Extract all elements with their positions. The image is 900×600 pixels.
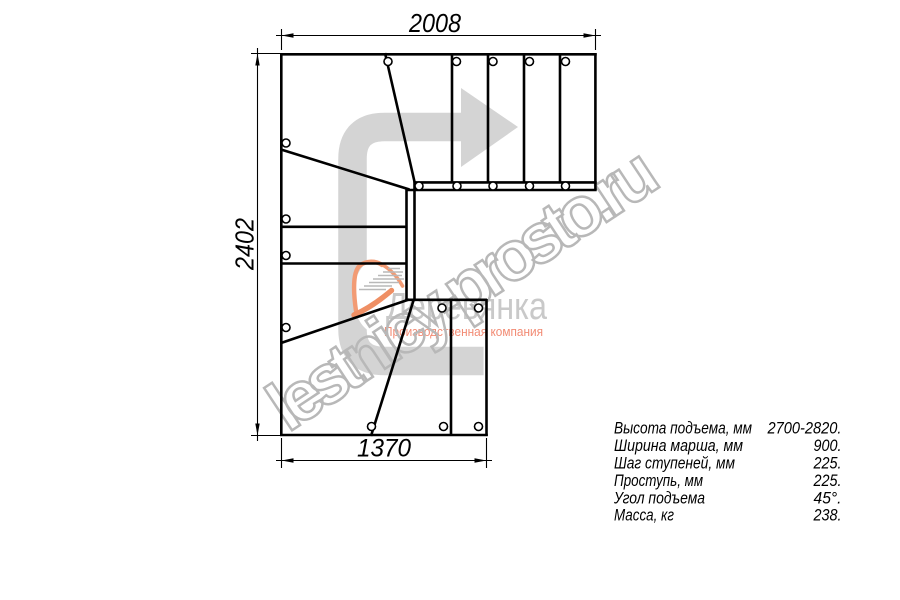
svg-text:238.: 238. (813, 507, 842, 525)
svg-text:Высота подъема, мм: Высота подъема, мм (614, 420, 752, 438)
svg-text:1370: 1370 (357, 435, 411, 463)
svg-text:Угол подъема: Угол подъема (613, 490, 705, 508)
svg-text:Масса, кг: Масса, кг (614, 507, 674, 525)
svg-text:225.: 225. (813, 454, 842, 472)
svg-text:45°.: 45°. (814, 490, 842, 508)
svg-text:Ширина марша, мм: Ширина марша, мм (614, 437, 743, 455)
svg-text:Проступь, мм: Проступь, мм (614, 472, 703, 490)
svg-text:2700-2820.: 2700-2820. (767, 420, 842, 438)
svg-text:2402: 2402 (232, 218, 260, 271)
svg-text:Шаг ступеней, мм: Шаг ступеней, мм (614, 454, 735, 472)
svg-text:900.: 900. (814, 437, 842, 455)
svg-text:225.: 225. (813, 472, 842, 490)
svg-text:2008: 2008 (408, 10, 462, 38)
